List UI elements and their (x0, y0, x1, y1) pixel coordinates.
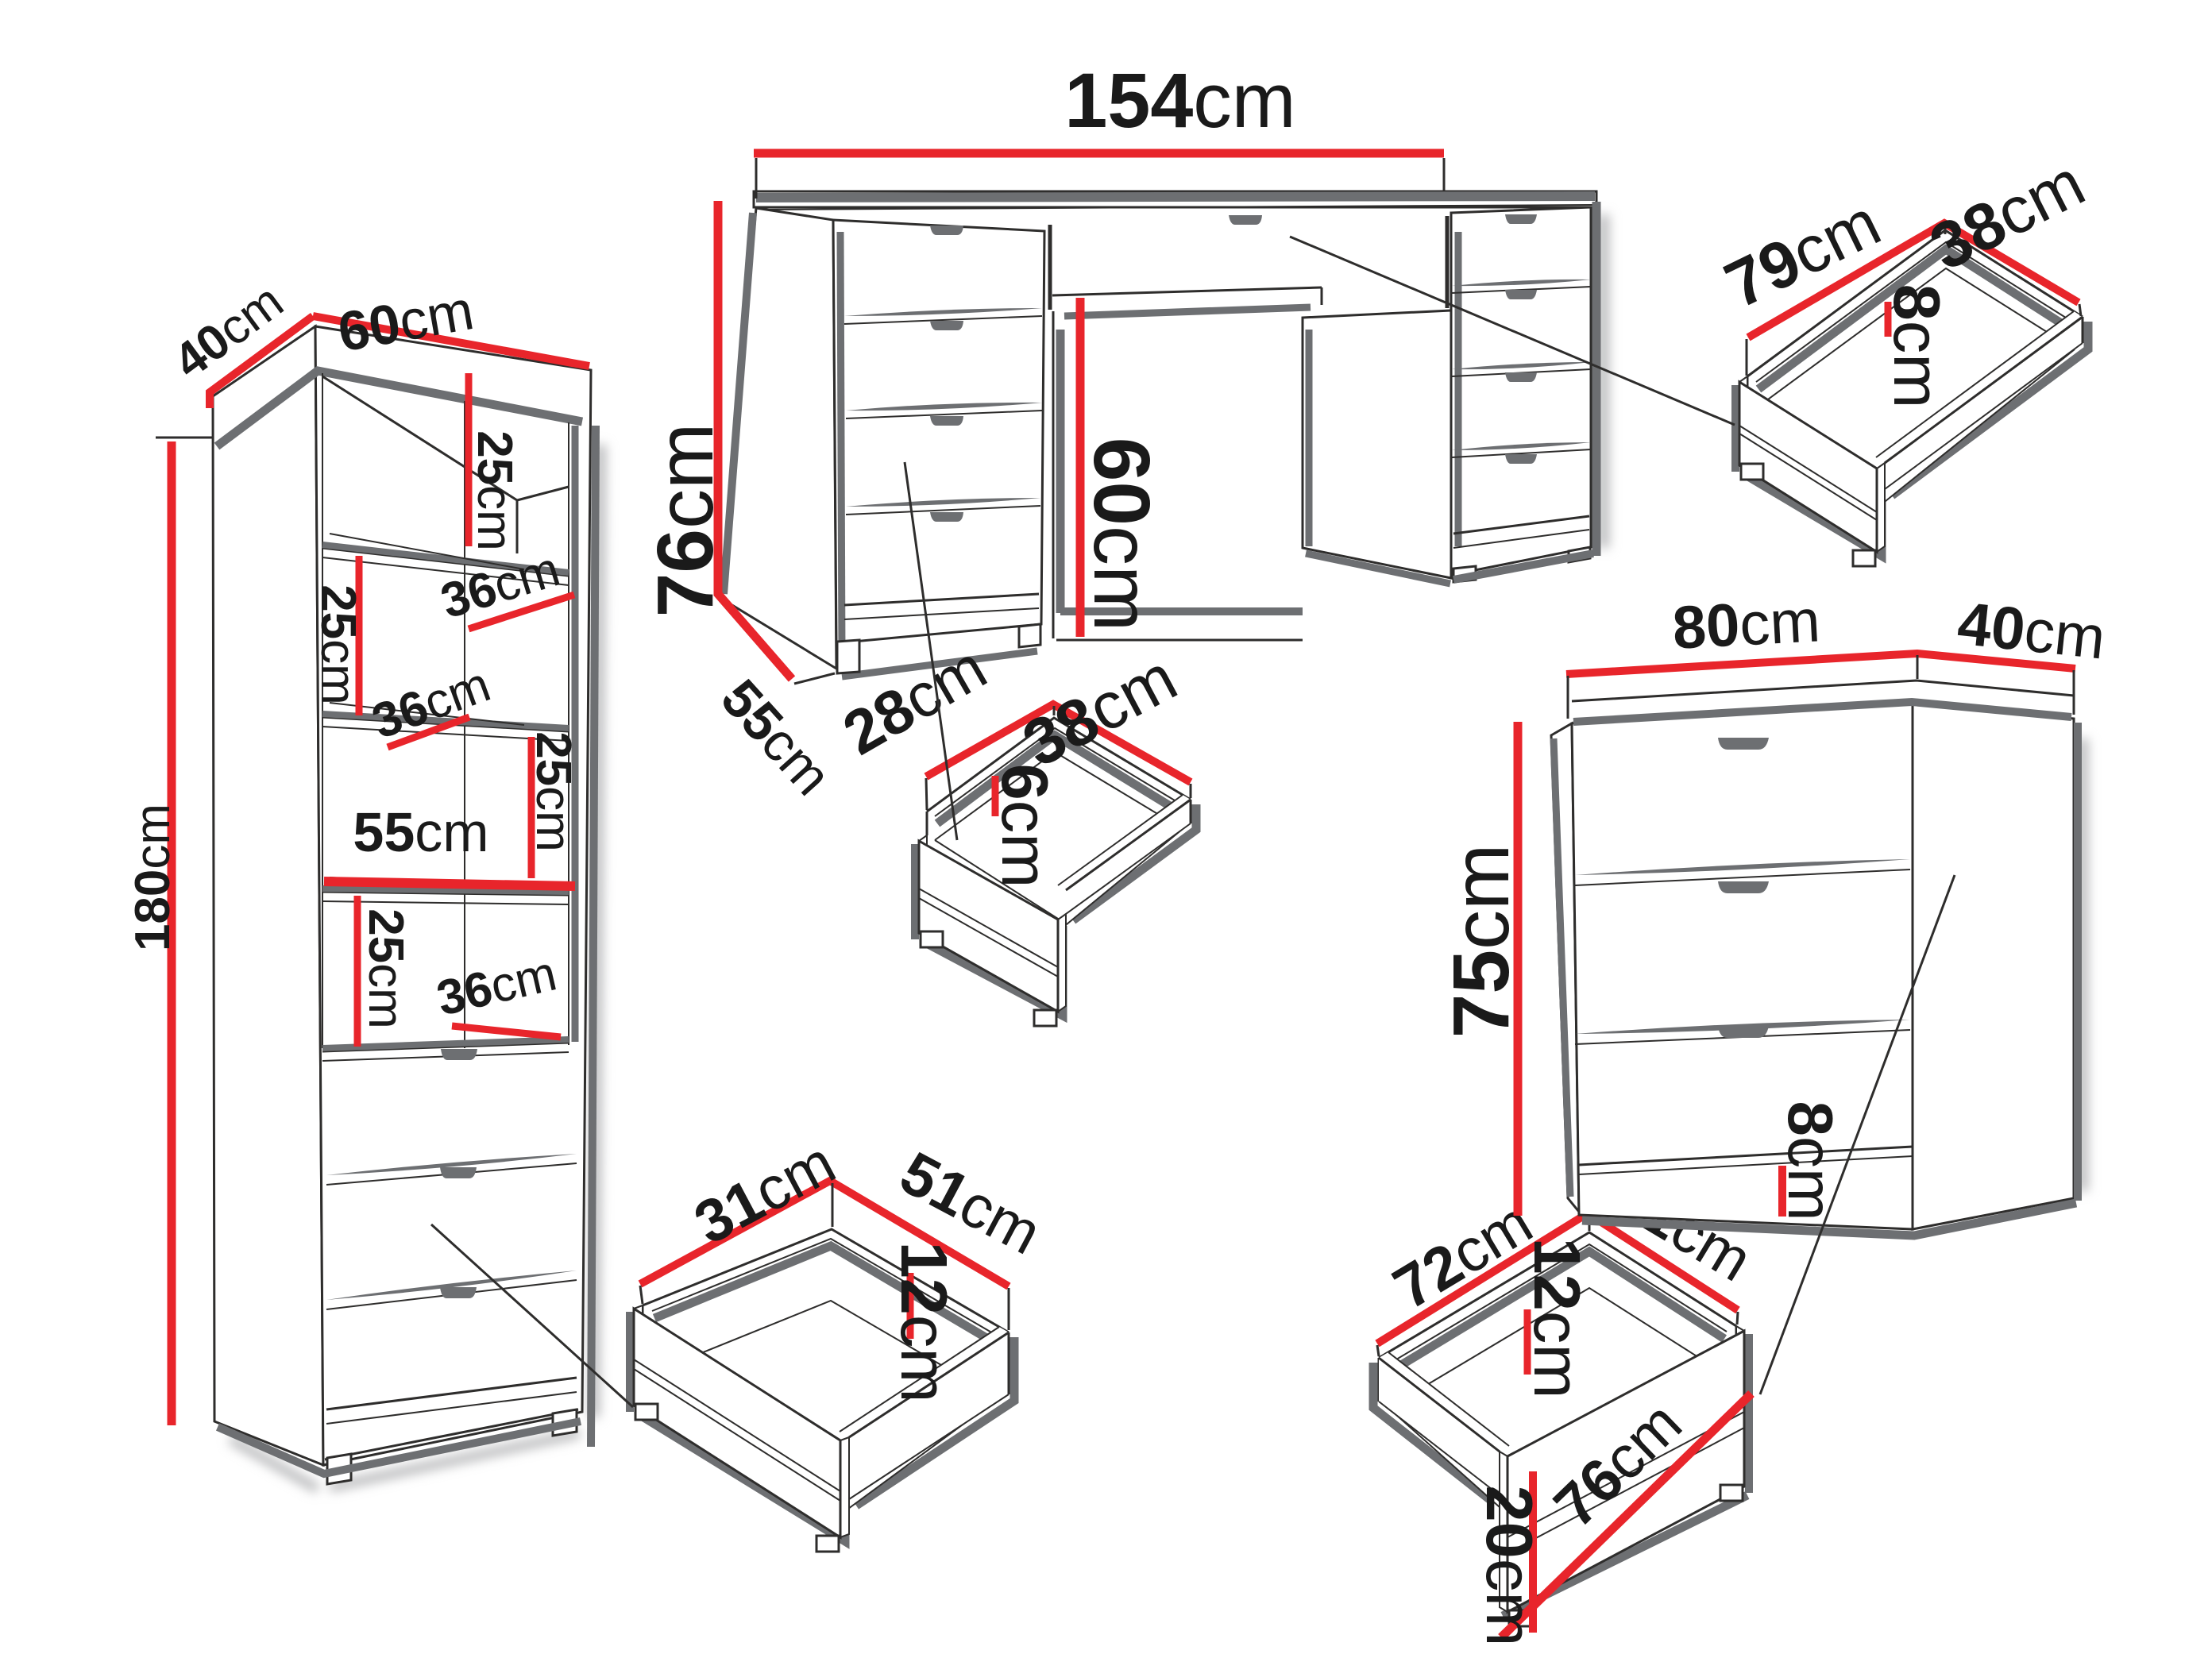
svg-text:80cm: 80cm (1671, 587, 1822, 662)
svg-text:12cm: 12cm (887, 1242, 961, 1403)
svg-text:60cm: 60cm (1077, 438, 1166, 632)
svg-text:180cm: 180cm (125, 804, 180, 951)
svg-text:8cm: 8cm (1880, 284, 1954, 409)
svg-text:25cm: 25cm (526, 731, 581, 852)
svg-text:75cm: 75cm (1437, 844, 1526, 1039)
svg-text:12cm: 12cm (1520, 1238, 1594, 1399)
svg-text:25cm: 25cm (467, 430, 522, 551)
svg-text:20cm: 20cm (1473, 1486, 1546, 1647)
svg-text:6cm: 6cm (988, 764, 1062, 889)
svg-text:154cm: 154cm (1064, 57, 1295, 144)
svg-text:25cm: 25cm (311, 584, 365, 705)
svg-text:76cm: 76cm (641, 423, 730, 618)
svg-text:55cm: 55cm (353, 801, 488, 863)
svg-text:25cm: 25cm (358, 908, 413, 1029)
svg-text:8cm: 8cm (1775, 1101, 1846, 1220)
